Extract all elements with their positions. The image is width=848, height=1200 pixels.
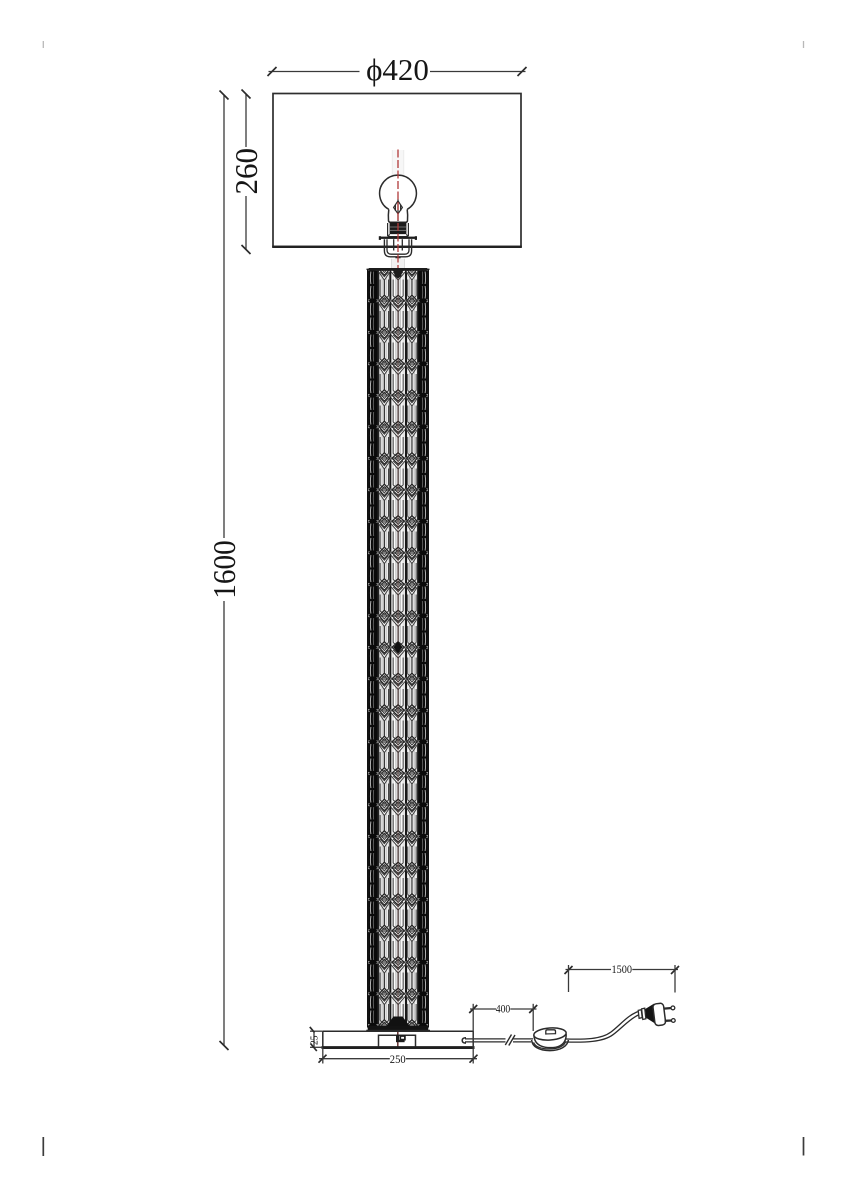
svg-text:400: 400 (496, 1002, 511, 1016)
svg-text:250: 250 (390, 1052, 406, 1066)
svg-text:25: 25 (308, 1035, 320, 1045)
svg-text:ϕ420: ϕ420 (366, 52, 429, 87)
svg-text:260: 260 (228, 148, 264, 195)
svg-text:1500: 1500 (611, 962, 632, 976)
svg-text:1600: 1600 (206, 540, 242, 599)
